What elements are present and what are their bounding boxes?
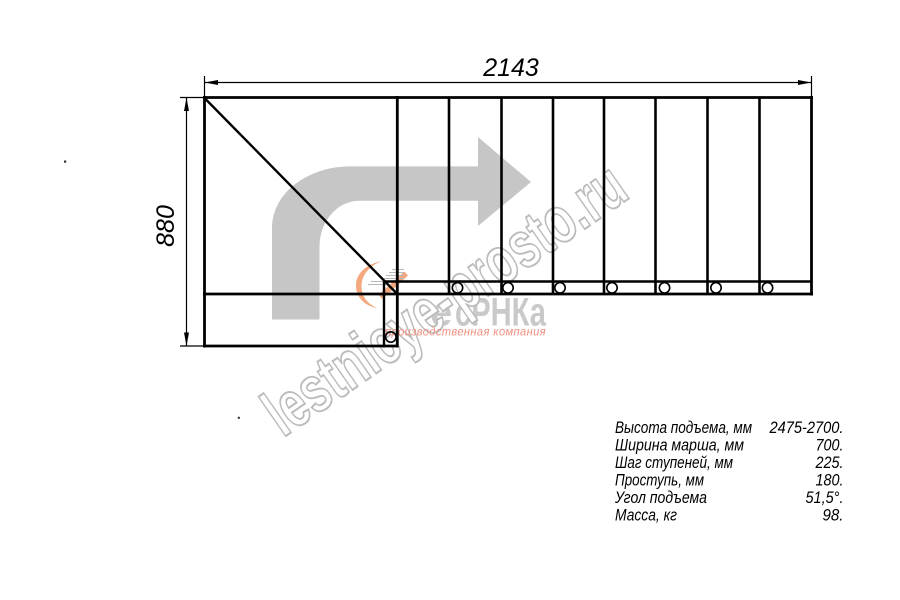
- svg-text:98.: 98.: [823, 506, 844, 525]
- svg-text:Высота подъема, мм: Высота подъема, мм: [615, 418, 752, 437]
- svg-text:Ширина марша, мм: Ширина марша, мм: [615, 436, 744, 455]
- svg-text:700.: 700.: [816, 436, 844, 455]
- svg-text:Угол подъема: Угол подъема: [614, 488, 707, 507]
- svg-text:Проступь, мм: Проступь, мм: [615, 471, 704, 490]
- svg-text:880: 880: [152, 205, 180, 247]
- svg-text:Шаг ступеней, мм: Шаг ступеней, мм: [615, 453, 733, 472]
- svg-text:2143: 2143: [482, 54, 539, 82]
- svg-text:производственная компания: производственная компания: [385, 327, 546, 339]
- svg-text:225.: 225.: [815, 453, 844, 472]
- svg-text:51,5°.: 51,5°.: [806, 488, 844, 507]
- svg-text:Масса, кг: Масса, кг: [615, 506, 677, 525]
- svg-text:2475-2700.: 2475-2700.: [769, 418, 844, 437]
- svg-text:180.: 180.: [816, 471, 844, 490]
